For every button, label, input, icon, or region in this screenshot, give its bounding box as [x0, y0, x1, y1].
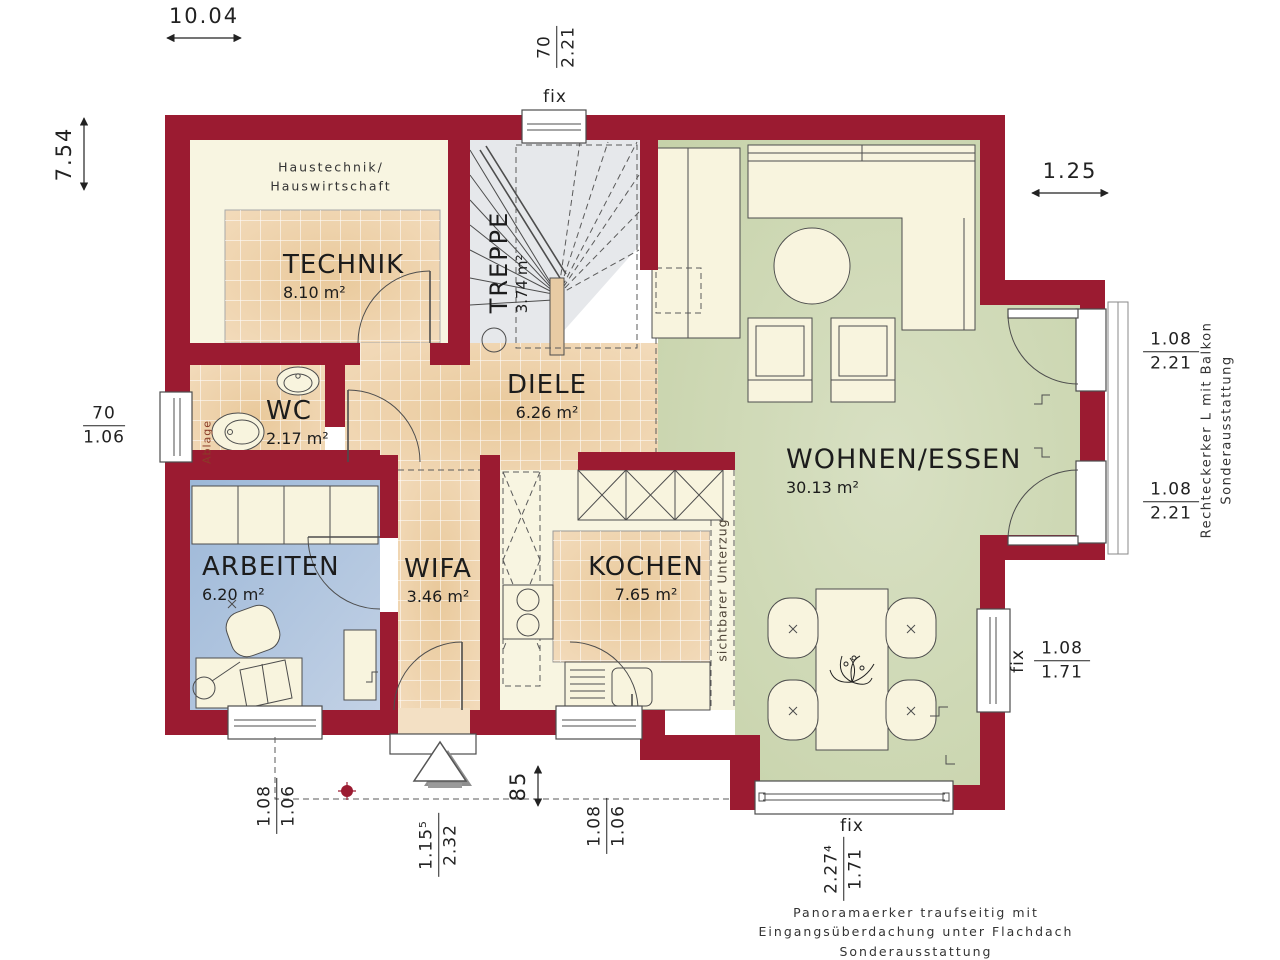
- kitchen-window: [556, 706, 642, 739]
- room-label-diele: DIELE 6.26 m²: [507, 370, 587, 422]
- balcony-outline: [1108, 302, 1128, 554]
- dining-chair: [886, 680, 936, 740]
- panorama-window-fix-label: fix: [840, 816, 864, 836]
- entry-door-size: 1.15⁵ 2.32: [416, 813, 462, 877]
- living-window-size: 1.08 1.71: [1034, 638, 1090, 684]
- panorama-window: [755, 781, 953, 814]
- dining-chair: [768, 598, 818, 658]
- wardrobe: [192, 486, 378, 544]
- washbasin: [277, 367, 319, 395]
- floor-plan-canvas: 10.04 7.54 1.25 85 70 2.21 fix 70 1.06 1…: [0, 0, 1280, 960]
- kitchen-beam-annotation: sichtbarer Unterzug: [715, 518, 730, 661]
- dimension-bay-offset: 1.25: [1043, 159, 1098, 183]
- living-fix-window: [977, 609, 1010, 712]
- room-label-treppe: TREPPE 3.74 m²: [485, 211, 531, 314]
- bay-annotation-line1: Rechteckerker L mit Balkon: [1200, 322, 1215, 539]
- arbeiten-window: [228, 706, 322, 739]
- room-label-technik: TECHNIK 8.10 m²: [283, 250, 404, 302]
- floor-plan-drawing: [0, 0, 1280, 960]
- panorama-annotation: Panoramaerker traufseitig mit Eingangsüb…: [759, 903, 1074, 960]
- wc-window-size: 70 1.06: [83, 403, 125, 449]
- room-label-arbeiten: ARBEITEN 6.20 m²: [202, 552, 340, 604]
- room-label-kochen: KOCHEN 7.65 m²: [588, 552, 704, 604]
- kitchen-window-size: 1.08 1.06: [584, 798, 630, 854]
- panorama-window-size: 2.27⁴ 1.71: [821, 837, 867, 901]
- dining-chair: [768, 680, 818, 740]
- technik-annotation: Haustechnik/ Hauswirtschaft: [270, 158, 391, 197]
- room-label-wc: WC 2.17 m²: [266, 396, 329, 448]
- downspout-dot: [338, 782, 356, 800]
- dining-table: [816, 589, 888, 750]
- stair-window-size: 70 2.21: [534, 26, 580, 68]
- stair-window: [522, 110, 586, 143]
- arbeiten-window-size: 1.08 1.06: [254, 778, 300, 834]
- dimension-total-width: 10.04: [169, 4, 239, 28]
- bay-door-upper-size: 1.08 2.21: [1143, 329, 1199, 375]
- dimension-total-height: 7.54: [52, 127, 76, 182]
- toilet: [212, 413, 264, 452]
- dining-chair: [886, 598, 936, 658]
- dimension-overhang-depth: 85: [506, 771, 530, 802]
- stair-window-fix-label: fix: [543, 87, 567, 107]
- coffee-table: [774, 228, 850, 304]
- stove: [503, 585, 553, 639]
- wc-window: [160, 392, 192, 462]
- bay-door-lower-size: 1.08 2.21: [1143, 479, 1199, 525]
- armchair: [748, 318, 812, 402]
- room-label-wifa: WIFA 3.46 m²: [404, 554, 472, 606]
- wc-annotation: Ablage: [201, 420, 214, 464]
- living-window-fix-label: fix: [1008, 649, 1028, 673]
- kitchen-upper-cabinets: [578, 470, 723, 520]
- room-label-wohnen-essen: WOHNEN/ESSEN 30.13 m²: [786, 444, 1021, 497]
- bay-annotation-line2: Sonderausstattung: [1220, 355, 1235, 504]
- armchair: [831, 318, 895, 402]
- sideboard: [652, 148, 740, 338]
- side-table: [344, 630, 378, 700]
